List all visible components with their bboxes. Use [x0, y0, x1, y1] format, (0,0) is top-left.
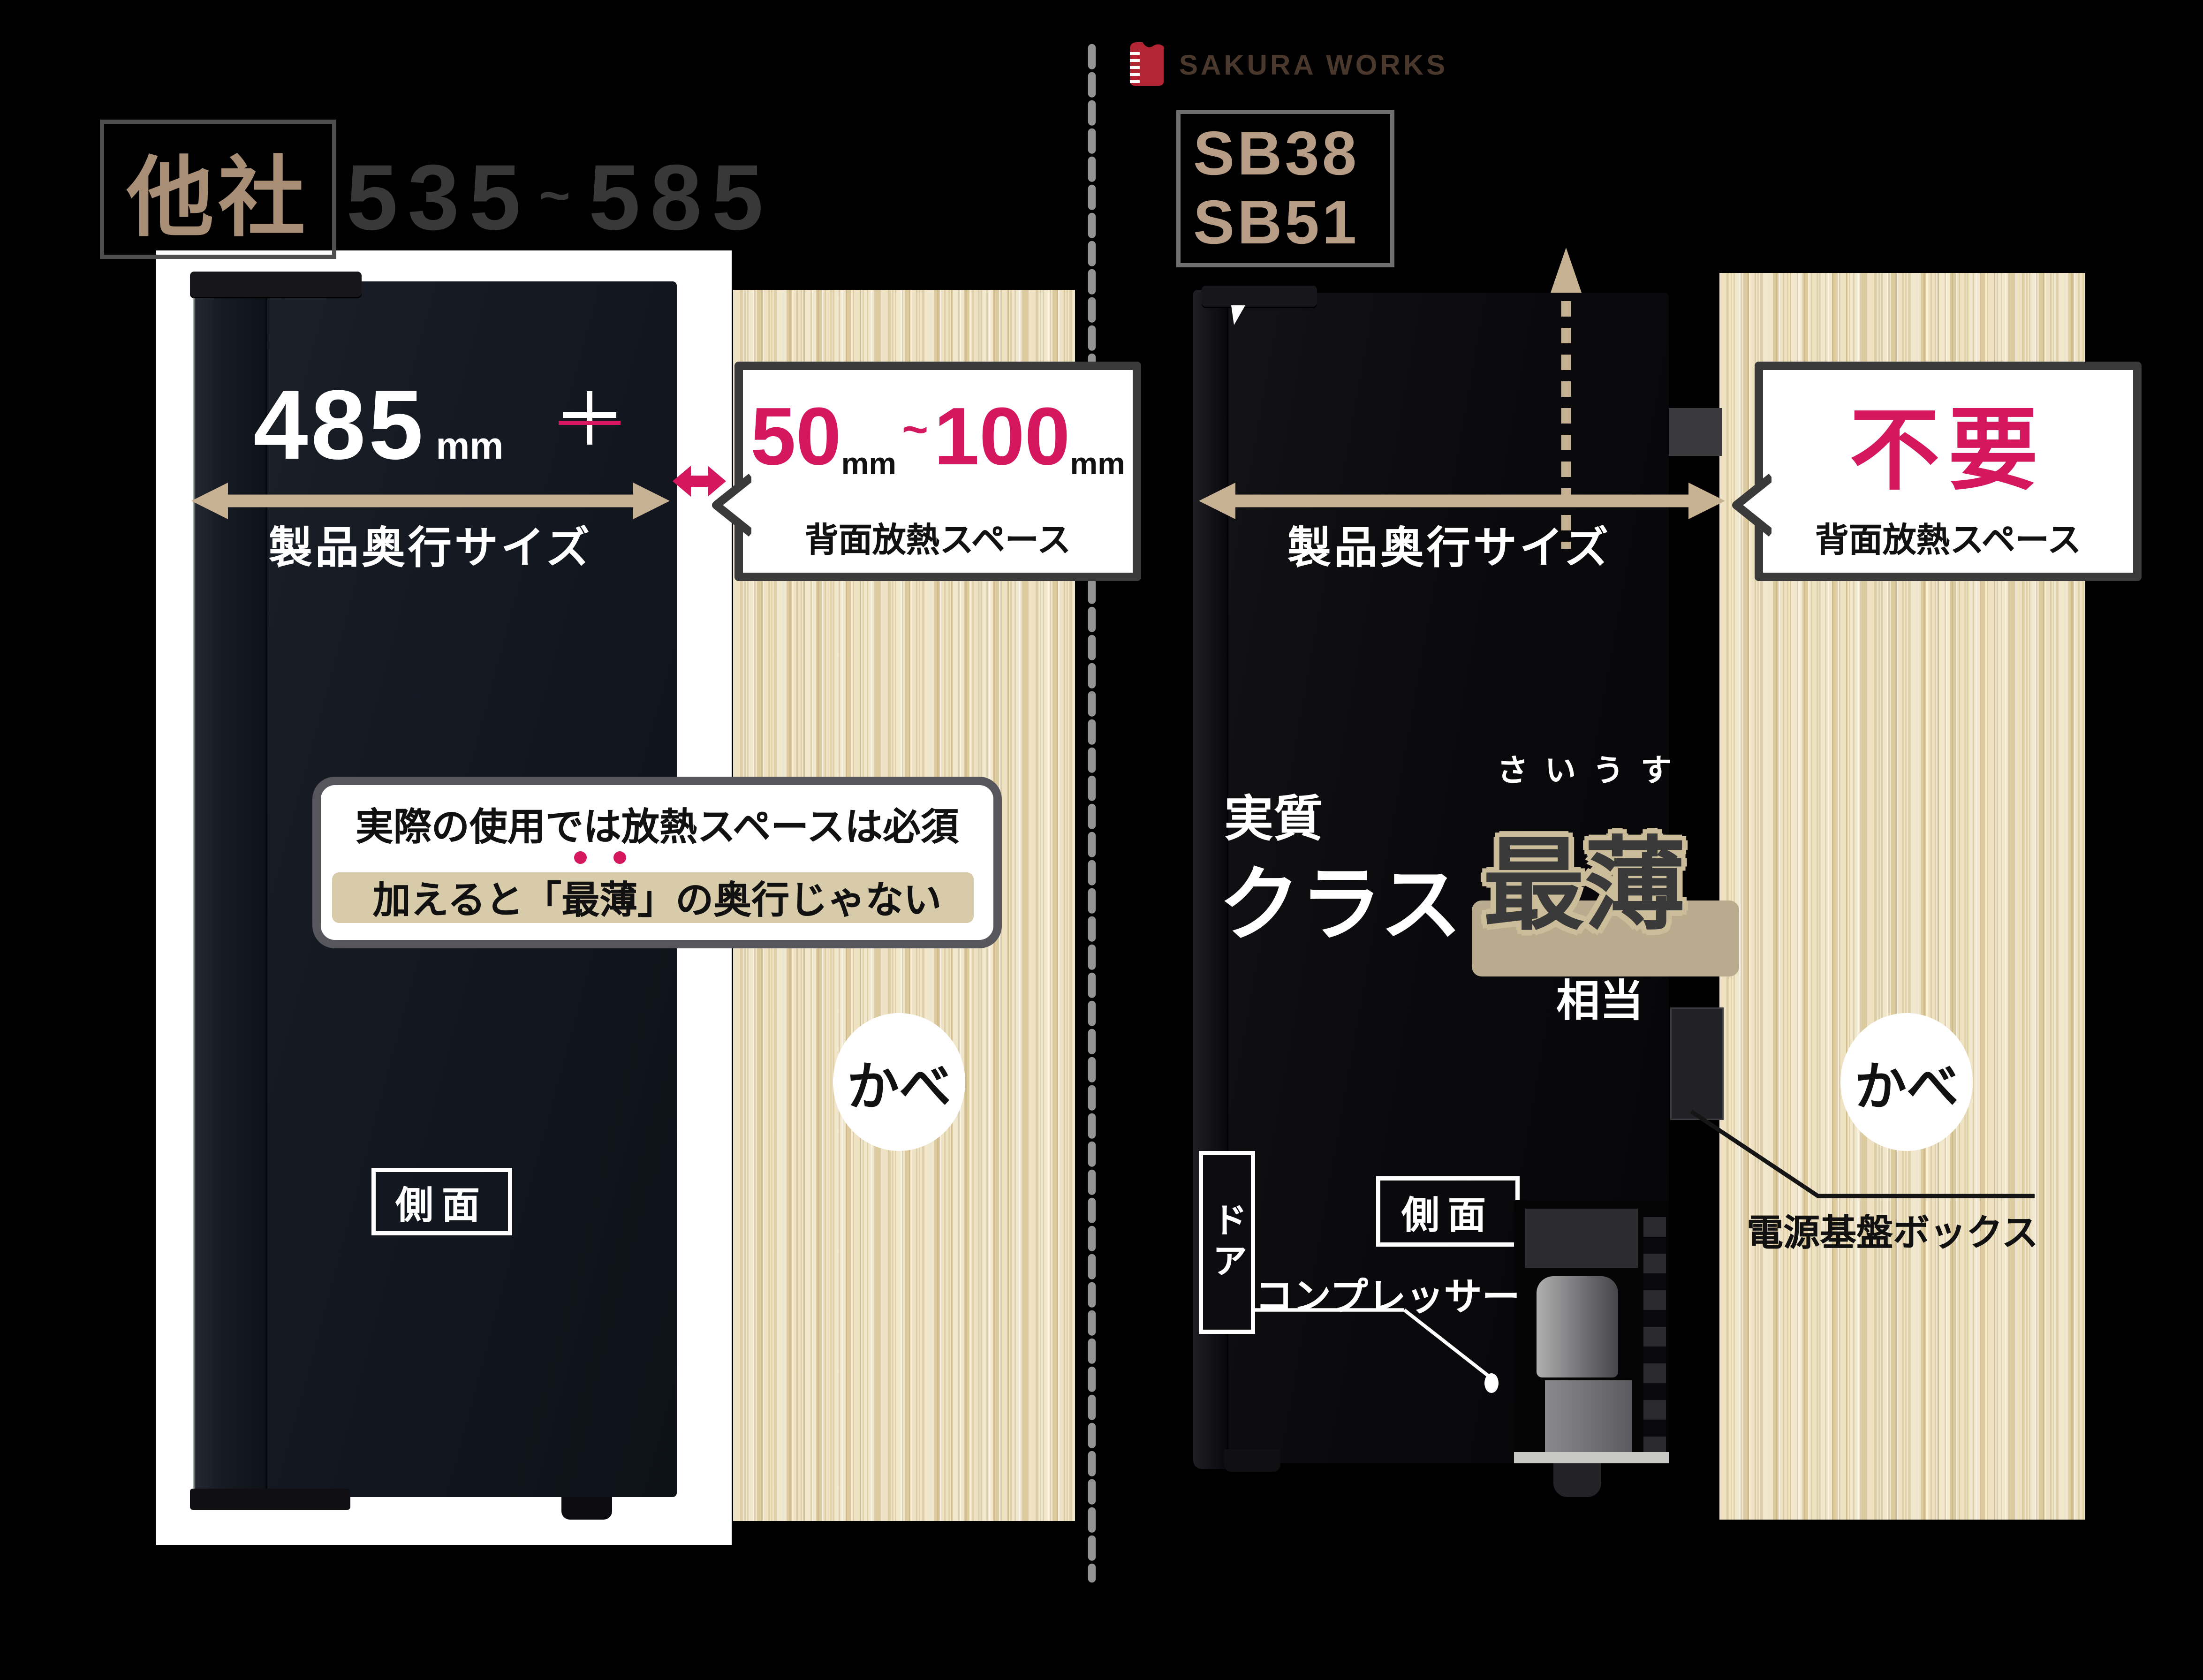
model-box: SB38 SB51 [1176, 110, 1394, 267]
rear-vent-box [1669, 408, 1722, 456]
right-fridge-hinge-cap [1202, 286, 1317, 307]
callout-min: 50 [750, 390, 841, 484]
plus-horizontal [563, 412, 616, 418]
compressor-cutaway [1514, 1200, 1669, 1463]
claim-furigana-text: さいうす [1497, 753, 1688, 788]
right-callout-caption: 背面放熱スペース [1763, 512, 2133, 561]
note-line2-row: 加えると「最薄」の奥行じゃない [321, 870, 993, 924]
range-max: 585 [589, 144, 773, 250]
power-board-label-row: 電源基盤ボックス [1742, 1204, 2043, 1256]
right-callout-notch [1729, 471, 1771, 539]
callout-unit-1: mm [841, 446, 896, 483]
cutaway-fins [1643, 1217, 1666, 1453]
note-line1-row: 実際の使用では放熱スペースは必須 [321, 796, 993, 851]
right-side-label: 側面 [1401, 1184, 1494, 1239]
left-depth-value: 485 mm [253, 369, 503, 481]
right-fridge-knob-foot [1553, 1463, 1601, 1497]
maker-label: 他社 [127, 126, 310, 253]
right-depth-caption: 製品奥行サイズ [1196, 512, 1703, 575]
left-callout-caption: 背面放熱スペース [743, 512, 1133, 561]
right-fridge-door-glint [1231, 305, 1245, 325]
left-fridge-hinge-cap [190, 272, 362, 297]
left-depth-caption: 製品奥行サイズ [189, 512, 673, 575]
claim-furigana: さいうす [1497, 746, 1688, 791]
model-sb38: SB38 [1193, 119, 1390, 189]
right-fridge-base-bar [1514, 1452, 1669, 1463]
left-callout-notch [709, 471, 751, 539]
power-board-leader-line [1686, 1109, 2040, 1207]
depth-unit: mm [436, 425, 503, 469]
power-board-box [1670, 1007, 1724, 1120]
note-box: 実際の使用では放熱スペースは必須 加えると「最薄」の奥行じゃない [312, 777, 1002, 948]
callout-tilde: ~ [902, 404, 928, 456]
right-gap-callout: 不要 背面放熱スペース [1755, 362, 2142, 581]
left-fridge-bottom-hinge [190, 1489, 350, 1510]
compressor-leader-line [1252, 1303, 1508, 1396]
callout-max: 100 [934, 390, 1070, 484]
left-depth-caption-text: 製品奥行サイズ [269, 512, 592, 575]
plus-icon [563, 391, 616, 445]
note-line1: 実際の使用では放熱スペースは必須 [356, 796, 959, 851]
infographic-canvas: 他社 535 ~ 585 側面 485 mm 製品奥行サイズ [0, 0, 2203, 1680]
left-wall-circle: かべ [833, 1013, 965, 1151]
compressor-lower-box [1545, 1380, 1632, 1459]
claim-highlight-text: 最薄 [1483, 830, 1686, 943]
claim-highlight-word: 最薄 [1483, 802, 1686, 950]
plus-pink-line [559, 421, 621, 425]
left-gap-callout: 50 mm ~ 100 mm 背面放熱スペース [734, 362, 1141, 581]
model-sb51: SB51 [1193, 189, 1390, 258]
left-callout-caption-text: 背面放熱スペース [805, 512, 1071, 561]
left-side-label-box: 側面 [371, 1168, 512, 1235]
claim-class-word: クラス [1219, 839, 1462, 957]
claim-suffix: 相当 [1556, 965, 1643, 1029]
left-callout-values: 50 mm ~ 100 mm [743, 390, 1133, 484]
depth-number: 485 [253, 369, 426, 481]
depth-range: 535 ~ 585 [346, 144, 773, 250]
right-side-label-box: 側面 [1376, 1176, 1520, 1247]
note-line2: 加えると「最薄」の奥行じゃない [373, 870, 942, 924]
brand-logo-text: SAKURA WORKS [1179, 51, 1448, 83]
maker-label-box: 他社 [100, 120, 336, 259]
left-side-label: 側面 [395, 1174, 488, 1229]
cutaway-top-box [1525, 1209, 1638, 1268]
plus-vertical [587, 391, 592, 445]
compressor-cylinder [1537, 1276, 1618, 1377]
brand-name: SAKURA WORKS [1179, 51, 1448, 82]
right-callout-headline: 不要 [1850, 378, 2047, 508]
left-wall-label: かべ [847, 1044, 951, 1120]
range-min: 535 [346, 144, 530, 250]
brand-logo-icon [1128, 41, 1165, 87]
claim-suffix-text: 相当 [1556, 976, 1643, 1026]
door-label-box: ドア [1199, 1151, 1255, 1334]
claim-class-word-text: クラス [1219, 860, 1462, 951]
emphasis-dot-1 [574, 851, 587, 864]
callout-unit-2: mm [1070, 446, 1125, 483]
emphasis-dot-2 [613, 851, 626, 864]
door-label: ドア [1202, 1202, 1252, 1283]
right-fridge-front-foot [1224, 1449, 1280, 1472]
left-fridge-foot [561, 1497, 612, 1520]
center-divider [1083, 37, 1100, 1590]
right-callout-headline-row: 不要 [1763, 378, 2133, 508]
power-board-label: 電源基盤ボックス [1747, 1204, 2038, 1256]
right-depth-caption-text: 製品奥行サイズ [1287, 512, 1611, 575]
right-callout-caption-text: 背面放熱スペース [1815, 512, 2081, 561]
range-tilde: ~ [539, 167, 580, 227]
